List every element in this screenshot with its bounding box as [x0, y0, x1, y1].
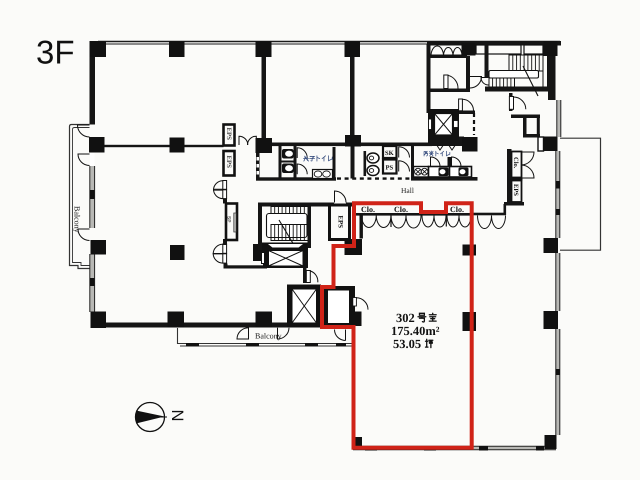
svg-text:Clo.: Clo.	[361, 205, 375, 214]
svg-text:53.05: 53.05	[393, 337, 421, 351]
svg-text:Clo.: Clo.	[512, 157, 519, 169]
svg-text:302: 302	[396, 311, 415, 325]
svg-text:Clo.: Clo.	[450, 205, 464, 214]
svg-text:3F: 3F	[36, 34, 75, 71]
svg-text:Hall: Hall	[401, 186, 414, 195]
svg-text:EPS: EPS	[225, 156, 232, 169]
svg-text:Clo.: Clo.	[394, 205, 408, 214]
svg-text:EPS: EPS	[225, 128, 232, 141]
svg-text:N: N	[168, 410, 186, 422]
svg-text:PS: PS	[386, 165, 394, 172]
svg-text:EPS: EPS	[337, 216, 344, 229]
svg-text:175.40m²: 175.40m²	[391, 324, 440, 338]
svg-text:SP: SP	[226, 216, 232, 223]
svg-text:EPS: EPS	[512, 184, 519, 196]
svg-text:SK: SK	[385, 150, 394, 157]
